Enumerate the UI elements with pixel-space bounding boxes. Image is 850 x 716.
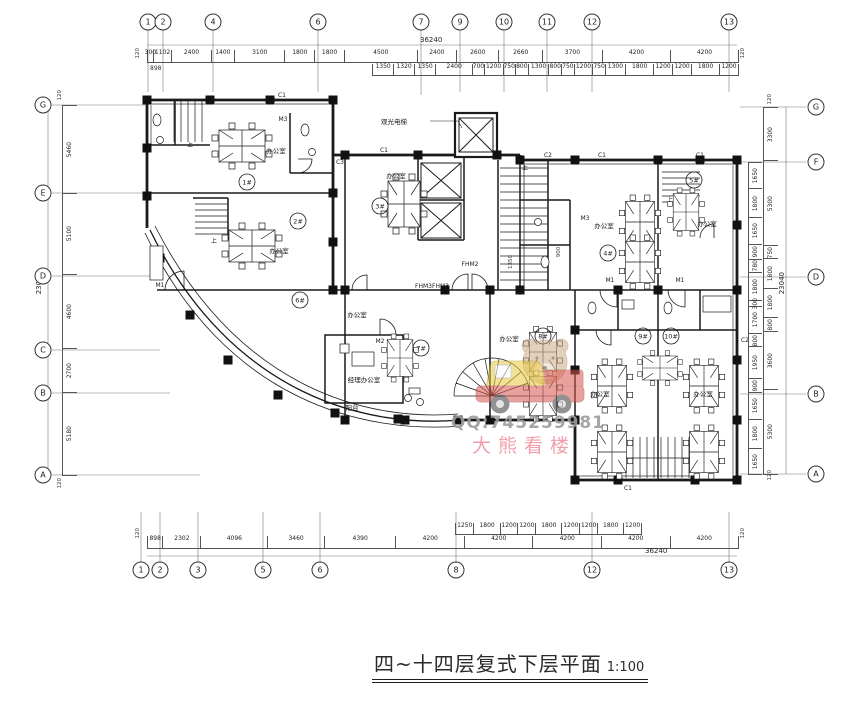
dim-value: 5180 <box>63 392 77 475</box>
dim-value: 1200 <box>517 523 535 534</box>
dim-strip-right-outer: 330053007501800180080036005300 <box>763 107 778 475</box>
interior-dim: 900 <box>556 246 562 257</box>
leader-line <box>430 121 462 128</box>
dim-value: 1800 <box>625 64 653 75</box>
axis-bubble-right-G: G <box>808 99 825 116</box>
watermark-name: 大熊看楼 <box>472 435 576 457</box>
axis-bubble-left-A: A <box>35 467 52 484</box>
window-tag: C1 <box>598 152 606 159</box>
elevator-shafts <box>421 118 493 238</box>
dim-strip-left: 54605100460027005180 <box>62 105 77 476</box>
dim-value: 1700 <box>749 306 762 333</box>
dim-value: 1650 <box>749 217 762 243</box>
dim-value: 1800 <box>535 523 561 534</box>
dim-value: 800 <box>548 64 561 75</box>
dim-value: 1350 <box>414 64 435 75</box>
dim-value: 3700 <box>542 50 602 62</box>
axis-bubble-top-6: 6 <box>310 14 327 31</box>
interior-dims: 1350 900 <box>508 246 562 269</box>
dim-value: 4200 <box>602 50 670 62</box>
floor-plan-svg: 1# 2# 3# 4# 5# 6# 7# 8# 9# 10# 办公室 办公室 办… <box>0 0 850 716</box>
dim-value: 4390 <box>324 536 396 548</box>
unit-label-9: 9# <box>638 333 648 341</box>
dim-value: 2302 <box>162 536 200 548</box>
dim-value: 4500 <box>344 50 417 62</box>
axis-bubble-top-12: 12 <box>584 14 601 31</box>
axis-bubble-top-9: 9 <box>452 14 469 31</box>
dim-value: 900 <box>749 378 762 393</box>
unit-label-1: 1# <box>242 179 252 187</box>
dim-value: 1300 <box>605 64 625 75</box>
drawing-sheet: { "title": { "text": "四~十四层复式下层平面", "sca… <box>0 0 850 716</box>
dim-value: 1102 <box>153 50 172 62</box>
office-label: 办公室 <box>269 246 289 255</box>
interior-dim: 1350 <box>508 255 514 269</box>
dim-value: 1200 <box>623 523 641 534</box>
unit-label-10: 10# <box>664 333 678 341</box>
manager-office-label: 经理办公室 <box>348 375 381 384</box>
dim-value: 1650 <box>749 162 762 188</box>
dim-value: 1200 <box>500 523 518 534</box>
dim-value: 1300 <box>528 64 548 75</box>
edge-dim: 120 <box>741 528 747 539</box>
dim-value: 5300 <box>764 160 778 245</box>
dim-value: 1800 <box>749 272 762 301</box>
axis-bubble-right-D: D <box>808 269 825 286</box>
dim-value: 700 <box>472 64 483 75</box>
dim-value: 1800 <box>764 258 778 288</box>
door-tag: M3 <box>279 116 288 123</box>
dim-value: 1200 <box>561 523 579 534</box>
axis-bubble-bottom-13: 13 <box>721 562 738 579</box>
axis-bubble-left-C: C <box>35 342 52 359</box>
dim-value: 1800 <box>749 188 762 217</box>
dim-value: 900 <box>749 244 762 259</box>
title-block: 四~十四层复式下层平面1:100 <box>372 648 648 683</box>
axis-bubble-left-E: E <box>35 185 52 202</box>
dim-value: 1800 <box>764 288 778 318</box>
balcony-label: 阳台 <box>346 403 359 412</box>
dim-value: 2600 <box>456 50 498 62</box>
dim-value: 4200 <box>670 50 738 62</box>
axis-bubble-right-F: F <box>808 154 825 171</box>
dim-value: 1250 <box>455 523 473 534</box>
watermark-text: QQ:745259981 大熊看楼 <box>451 413 605 457</box>
dim-value: 750 <box>592 64 604 75</box>
axis-bubble-bottom-3: 3 <box>190 562 207 579</box>
stair-up-label: 上 <box>187 141 193 149</box>
drawing-title: 四~十四层复式下层平面 <box>374 652 602 676</box>
fire-door-tag: FHM2 <box>462 261 479 268</box>
dim-value: 4096 <box>200 536 267 548</box>
stair-up-label: 上 <box>667 196 673 204</box>
window-tag: C2 <box>544 152 552 159</box>
dim-value: 898 <box>147 536 162 548</box>
dim-value: 1800 <box>314 50 344 62</box>
dim-value: 1320 <box>393 64 414 75</box>
dim-value: 5100 <box>63 193 77 275</box>
door-tag: M1 <box>606 277 615 284</box>
dim-value: 4200 <box>670 536 739 548</box>
office-label: 办公室 <box>594 221 614 230</box>
unit-label-5: 5# <box>689 177 699 185</box>
dim-value: 4200 <box>532 536 601 548</box>
dim-left-offset: 898 <box>150 66 161 72</box>
axis-bubble-bottom-5: 5 <box>255 562 272 579</box>
office-label: 办公室 <box>590 389 610 398</box>
axis-bubble-bottom-12: 12 <box>584 562 601 579</box>
dim-value: 1200 <box>653 64 672 75</box>
door-tag: M1 <box>676 277 685 284</box>
stair-up-label: 上 <box>211 237 217 245</box>
dim-value: 750 <box>503 64 515 75</box>
dim-value: 1800 <box>691 64 719 75</box>
axis-bubble-right-B: B <box>808 386 825 403</box>
edge-dim: 120 <box>58 90 64 101</box>
unit-label-4: 4# <box>603 250 613 258</box>
dim-value: 1350 <box>372 64 393 75</box>
fire-door-tag: FHM3FHM3 <box>415 283 449 290</box>
dim-value: 2400 <box>417 50 456 62</box>
watermark-qq: QQ:745259981 <box>451 413 605 433</box>
axis-bubble-left-D: D <box>35 268 52 285</box>
unit-label-8: 8# <box>538 333 548 341</box>
dim-value: 800 <box>764 317 778 331</box>
office-label: 办公室 <box>266 146 286 155</box>
window-tag: C3 <box>336 159 344 166</box>
stair-up-label: 上 <box>522 164 528 172</box>
axis-bubble-top-7: 7 <box>413 14 430 31</box>
unit-label-7: 7# <box>416 345 426 353</box>
edge-dim: 120 <box>768 470 774 481</box>
dim-strip-top-row2: 1350132013502400700120075080013008007501… <box>372 64 739 76</box>
dim-value: 3100 <box>234 50 284 62</box>
edge-dim: 120 <box>768 94 774 105</box>
axis-bubble-bottom-8: 8 <box>448 562 465 579</box>
dim-value: 1800 <box>284 50 314 62</box>
title-underline: 四~十四层复式下层平面1:100 <box>372 648 648 683</box>
curved-wall <box>145 226 462 427</box>
door-tag: M1 <box>156 282 165 289</box>
dim-value: 1800 <box>749 419 762 448</box>
unit-label-6: 6# <box>295 297 305 305</box>
axis-bubble-top-13: 13 <box>721 14 738 31</box>
dim-value: 4600 <box>63 274 77 348</box>
axis-bubble-top-11: 11 <box>539 14 556 31</box>
dim-strip-bottom-sub: 125018001200120018001200120018001200 <box>455 523 642 535</box>
office-label: 办公室 <box>347 310 367 319</box>
axis-bubble-top-4: 4 <box>205 14 222 31</box>
edge-dim: 120 <box>741 48 747 59</box>
dim-value: 750 <box>561 64 573 75</box>
drawing-scale: 1:100 <box>607 660 644 675</box>
dim-value: 1800 <box>597 523 623 534</box>
dim-value: 1200 <box>719 64 738 75</box>
dim-value: 3300 <box>764 107 778 160</box>
axis-bubble-bottom-1: 1 <box>133 562 150 579</box>
edge-dim: 120 <box>58 478 64 489</box>
dim-value: 1800 <box>473 523 499 534</box>
dim-value: 1200 <box>574 64 593 75</box>
office-label: 办公室 <box>693 389 713 398</box>
dim-value: 3600 <box>764 331 778 389</box>
window-tag: C1 <box>696 152 704 159</box>
dim-value: 750 <box>764 245 778 258</box>
dim-strip-top-row1: 3001102240014003100180018004500240026002… <box>147 50 739 63</box>
axis-bubble-left-B: B <box>35 385 52 402</box>
unit-label-2: 2# <box>293 218 303 226</box>
dim-value: 1200 <box>484 64 503 75</box>
observation-elevator-label: 观光电梯 <box>381 117 408 126</box>
edge-dim: 120 <box>136 528 142 539</box>
window-tag: C1 <box>380 147 388 154</box>
dim-value: 5460 <box>63 105 77 193</box>
dim-total-top: 36240 <box>420 37 442 44</box>
dim-total-bottom: 36240 <box>645 548 667 555</box>
door-tag: M3 <box>581 215 590 222</box>
dim-value: 4200 <box>395 536 464 548</box>
dim-value: 5300 <box>764 389 778 474</box>
axis-bubble-bottom-2: 2 <box>152 562 169 579</box>
window-tag: C1 <box>278 92 286 99</box>
dim-value: 1400 <box>211 50 234 62</box>
edge-dim: 120 <box>136 48 142 59</box>
dim-value: 2400 <box>435 64 472 75</box>
dim-value: 2700 <box>63 348 77 392</box>
axis-bubble-right-A: A <box>808 466 825 483</box>
dim-value: 780 <box>749 259 762 272</box>
axis-bubble-left-G: G <box>35 97 52 114</box>
dim-value: 2660 <box>498 50 541 62</box>
dim-value: 1200 <box>672 64 691 75</box>
dim-value: 1200 <box>579 523 597 534</box>
car-window <box>495 365 511 378</box>
axis-bubble-top-2: 2 <box>155 14 172 31</box>
dim-value: 1650 <box>749 392 762 418</box>
office-label: 办公室 <box>697 219 717 228</box>
watermark-graphic <box>476 339 584 414</box>
window-tag: C1 <box>624 485 632 492</box>
dim-value: 3460 <box>267 536 324 548</box>
dim-strip-right-inner: 1650180016509007801800300170080019509001… <box>748 162 762 475</box>
dim-value: 800 <box>515 64 528 75</box>
dim-value: 2400 <box>171 50 210 62</box>
office-label: 办公室 <box>386 171 406 180</box>
dim-total-right: 23040 <box>779 272 786 294</box>
axis-bubble-top-10: 10 <box>496 14 513 31</box>
dim-value: 1950 <box>749 346 762 377</box>
door-tag: M2 <box>376 338 385 345</box>
dim-value: 1650 <box>749 448 762 474</box>
dim-value: 800 <box>749 333 762 346</box>
dim-value: 4200 <box>464 536 533 548</box>
office-label: 办公室 <box>499 334 519 343</box>
unit-label-3: 3# <box>375 203 385 211</box>
axis-bubble-bottom-6: 6 <box>312 562 329 579</box>
